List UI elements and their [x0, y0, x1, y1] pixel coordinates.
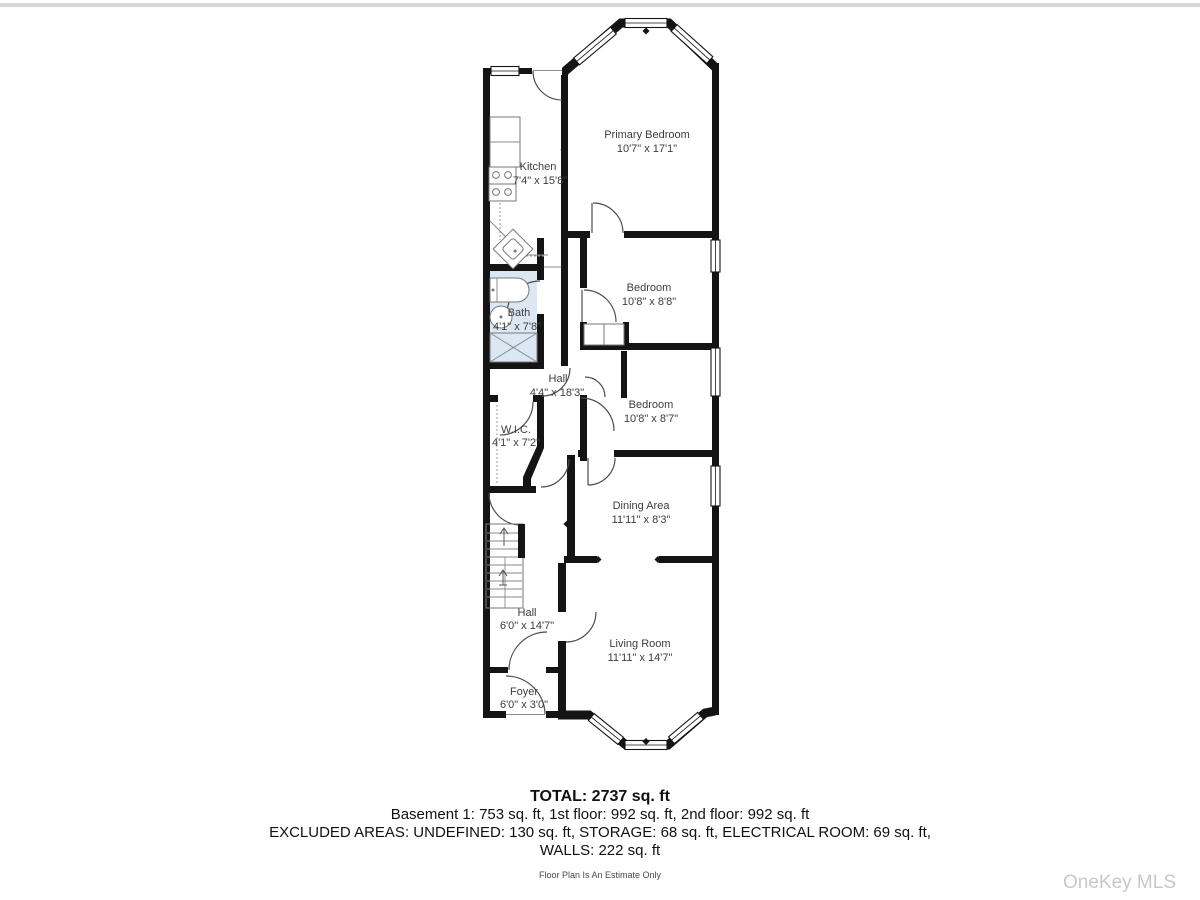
- room-dims-hall-lower: 6'0" x 14'7": [500, 620, 554, 632]
- room-dims-foyer: 6'0" x 3'0": [500, 699, 548, 711]
- room-dims-bedroom2: 10'8" x 8'7": [624, 413, 678, 425]
- tub-drain: [492, 289, 495, 292]
- room-label-hall-upper: Hall: [549, 373, 568, 385]
- room-dims-kitchen: 7'4" x 15'8": [513, 175, 567, 187]
- walls-area-line: WALLS: 222 sq. ft: [0, 842, 1200, 860]
- room-label-wic: W.I.C.: [501, 424, 531, 436]
- hall-passage-door-arc: [541, 459, 569, 487]
- floor-plan-page: Kitchen 7'4" x 15'8" Primary Bedroom 10'…: [0, 0, 1200, 900]
- room-dims-wic: 4'1" x 7'2": [492, 437, 540, 449]
- room-dims-primary-bedroom: 10'7" x 17'1": [617, 143, 677, 155]
- dining-window: [711, 466, 720, 506]
- room-label-hall-lower: Hall: [518, 607, 537, 619]
- kitchen-door-arc: [533, 71, 562, 100]
- bedroom1-closet: [584, 324, 604, 345]
- bay-top-center-window: [625, 19, 667, 28]
- disclaimer-text: Floor Plan Is An Estimate Only: [0, 870, 1200, 880]
- kitchen-window: [491, 67, 519, 76]
- room-dims-dining: 11'11" x 8'3": [612, 514, 671, 526]
- bay-top-right-window: [671, 25, 713, 64]
- bedroom1-window: [711, 240, 720, 272]
- room-dims-bath: 4'1" x 7'8": [493, 321, 541, 333]
- room-label-kitchen: Kitchen: [520, 161, 557, 173]
- room-label-living: Living Room: [609, 638, 670, 650]
- primary-door-arc: [593, 203, 623, 233]
- room-label-foyer: Foyer: [510, 686, 538, 698]
- bedroom2-nook-door-arc: [585, 377, 605, 397]
- room-label-dining: Dining Area: [613, 500, 671, 512]
- room-label-bedroom1: Bedroom: [627, 282, 672, 294]
- bathtub: [490, 278, 529, 302]
- area-summary: TOTAL: 2737 sq. ft Basement 1: 753 sq. f…: [0, 788, 1200, 860]
- bay-bottom-right-window: [669, 712, 704, 743]
- stair-direction-arrow: [499, 528, 508, 585]
- staircase: [486, 524, 525, 608]
- foyer-hall-door-arc: [509, 632, 547, 670]
- total-area-line: TOTAL: 2737 sq. ft: [0, 788, 1200, 806]
- excluded-areas-line: EXCLUDED AREAS: UNDEFINED: 130 sq. ft, S…: [0, 824, 1200, 842]
- onekey-mls-watermark: OneKey MLS: [1063, 872, 1176, 894]
- bay-top-left-window: [574, 27, 617, 65]
- room-dims-living: 11'11" x 14'7": [608, 652, 673, 664]
- room-label-bath: Bath: [508, 307, 531, 319]
- floor-plan: Kitchen 7'4" x 15'8" Primary Bedroom 10'…: [0, 0, 1200, 900]
- dining-door-arc: [588, 458, 615, 485]
- room-dims-hall-upper: 4'4" x 18'3": [530, 387, 584, 399]
- bay-bottom-left-window: [588, 714, 623, 745]
- room-label-primary-bedroom: Primary Bedroom: [604, 129, 690, 141]
- room-labels: Kitchen 7'4" x 15'8" Primary Bedroom 10'…: [492, 129, 690, 711]
- living-door-arc: [566, 612, 596, 642]
- room-label-bedroom2: Bedroom: [629, 399, 674, 411]
- stair-hall-door-arc: [489, 493, 521, 525]
- bedroom2-window: [711, 348, 720, 396]
- bedroom1-door-arc: [584, 290, 616, 322]
- kitchen-sink: [493, 229, 533, 269]
- room-dims-bedroom1: 10'8" x 8'8": [622, 296, 676, 308]
- floor-areas-line: Basement 1: 753 sq. ft, 1st floor: 992 s…: [0, 806, 1200, 824]
